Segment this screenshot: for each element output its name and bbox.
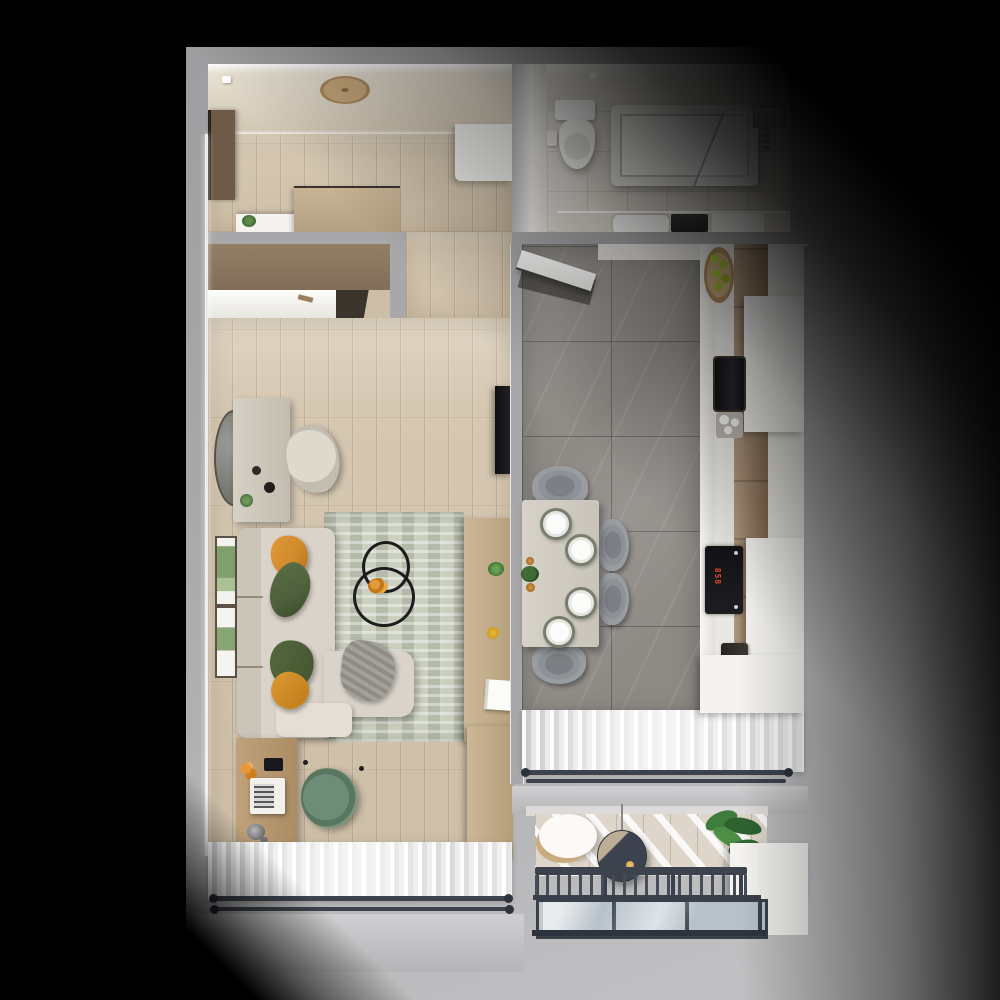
- art-frame-upper: [215, 536, 237, 606]
- living-wall-glow-left: [205, 134, 208, 856]
- cooktop-control-dot: [734, 605, 738, 609]
- kitchen-white-cabinet-lower: [746, 538, 804, 662]
- shoe-cabinet-plant: [242, 215, 256, 227]
- rod-finial: [505, 905, 514, 914]
- glass-set: [716, 412, 743, 438]
- rod-finial: [504, 894, 513, 903]
- table-candle: [526, 583, 535, 592]
- rod-finial: [784, 768, 793, 777]
- living-curtain-rod-back: [214, 907, 510, 911]
- closet-wall-right: [390, 232, 407, 320]
- bathroom-ceiling-spot: [590, 72, 596, 78]
- entrance-door: [208, 110, 235, 200]
- console-plant: [240, 494, 253, 507]
- cooktop-control-dot: [734, 551, 738, 555]
- kitchen-curtains: [522, 710, 804, 772]
- console-perfume: [252, 466, 261, 475]
- kitchen-top-band: [598, 244, 702, 260]
- dining-chair-right-1: [597, 519, 629, 571]
- media-decor-yellow: [487, 627, 499, 639]
- smoke-detector: [222, 76, 231, 83]
- railing-top-rail: [535, 867, 747, 875]
- washing-machine: [671, 214, 708, 232]
- kitchen-curtain-rod-front: [524, 770, 788, 775]
- shower-set: [753, 106, 785, 128]
- dining-chair-right-2: [597, 573, 629, 625]
- place-setting: [543, 616, 575, 648]
- media-plant: [488, 562, 504, 576]
- shower-hose: [762, 128, 770, 152]
- closet-carcass: [208, 244, 390, 292]
- apartment-floor-plan-render: 858: [0, 0, 1000, 1000]
- console-jar: [264, 482, 275, 493]
- toilet-paper-holder: [547, 131, 557, 146]
- rattan-chair: [539, 814, 597, 858]
- railing-balusters: [535, 875, 747, 897]
- closet-open-gap: [336, 290, 390, 318]
- table-plant: [521, 566, 539, 582]
- kitchen-counter-edge: [700, 244, 715, 714]
- place-setting: [565, 587, 597, 619]
- bathroom-entry-wall: [512, 64, 547, 232]
- kitchen-white-cabinet-end: [700, 655, 804, 713]
- hall-cabinet: [455, 124, 512, 181]
- rod-finial: [209, 894, 218, 903]
- induction-cooktop: 858: [705, 546, 743, 614]
- glass-bottom-bar: [532, 930, 766, 936]
- toilet-tank: [555, 100, 595, 120]
- rod-finial: [521, 768, 530, 777]
- closet-sliding-door: [208, 290, 336, 318]
- bath-white-unit: [711, 212, 765, 234]
- chair-caster: [359, 766, 364, 771]
- coffee-table-large: [353, 567, 415, 627]
- place-setting: [540, 508, 572, 540]
- fruit-bowl: [704, 247, 734, 303]
- sofa-cushion-seam: [237, 666, 263, 668]
- living-exterior-wall: [196, 914, 524, 972]
- chair-caster: [303, 760, 308, 765]
- desk-lamp: [247, 824, 265, 840]
- art-frame-lower: [215, 606, 237, 678]
- corridor-floor: [406, 232, 512, 322]
- ceiling-light: [320, 76, 370, 104]
- entry-low-wardrobe: [294, 186, 400, 234]
- table-candle: [526, 557, 534, 565]
- kitchen-curtain-rod-back: [526, 779, 786, 783]
- place-setting: [565, 534, 597, 566]
- living-curtain-rod-front: [212, 896, 510, 901]
- rod-finial: [210, 905, 219, 914]
- media-notebook: [484, 679, 513, 711]
- sofa-cushion-seam: [237, 596, 263, 598]
- dining-chair-bottom: [532, 644, 586, 684]
- built-in-oven: [715, 358, 744, 410]
- smartphone: [264, 758, 283, 771]
- coffee-table-flowers: [368, 578, 388, 594]
- apples: [710, 254, 719, 263]
- living-wardrobe: [467, 726, 513, 858]
- living-room-curtains: [208, 842, 512, 900]
- cooktop-display: 858: [713, 568, 722, 585]
- kitchen-white-cabinet-upper: [744, 296, 804, 432]
- laptop-keyboard: [254, 784, 274, 808]
